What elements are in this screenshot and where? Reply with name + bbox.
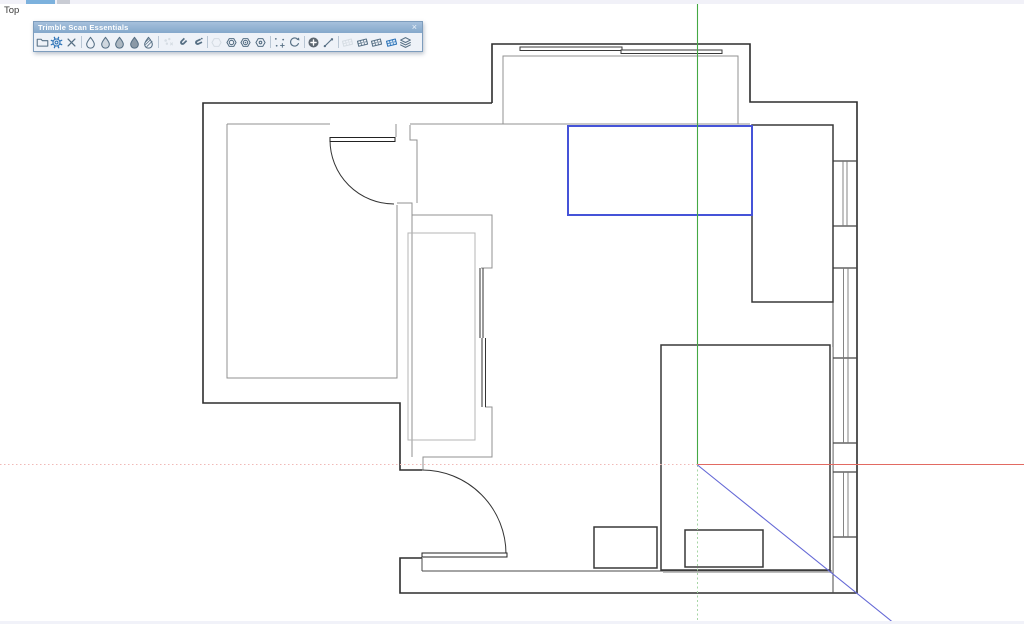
bed — [661, 345, 830, 570]
hexagon-target-icon[interactable] — [239, 34, 254, 50]
trimble-scan-essentials-toolbar: Trimble Scan Essentials × — [33, 21, 423, 52]
door-top-room — [330, 138, 395, 205]
close-icon[interactable]: × — [411, 23, 418, 32]
toolbar-separator — [158, 36, 159, 48]
open-file-icon[interactable] — [35, 34, 50, 50]
door-bottom — [422, 470, 507, 557]
layers-icon[interactable] — [399, 34, 414, 50]
hexagon-ring-icon[interactable] — [253, 34, 268, 50]
magnet-icon[interactable] — [176, 34, 191, 50]
measure-line-icon[interactable] — [321, 34, 336, 50]
mesh-dense-icon[interactable] — [370, 34, 385, 50]
drawing-canvas[interactable] — [0, 0, 1024, 624]
clear-icon[interactable] — [64, 34, 79, 50]
toolbar-separator — [81, 36, 82, 48]
toolbar-separator — [304, 36, 305, 48]
bay-window — [520, 47, 722, 54]
toolbar-separator — [207, 36, 208, 48]
bed-shadow — [663, 347, 833, 573]
selection-rectangle[interactable] — [568, 126, 752, 215]
mesh-active-icon[interactable] — [384, 34, 399, 50]
rotate-icon[interactable] — [287, 34, 302, 50]
toolbar-separator — [338, 36, 339, 48]
cabinet-sliding-doors — [480, 268, 486, 407]
mesh-faint-icon[interactable] — [341, 34, 356, 50]
scatter-points-icon[interactable] — [273, 34, 288, 50]
toolbar-titlebar[interactable]: Trimble Scan Essentials × — [34, 22, 422, 33]
sketchup-viewport: Top — [0, 0, 1024, 624]
magnet-alt-icon[interactable] — [190, 34, 205, 50]
mesh-icon[interactable] — [355, 34, 370, 50]
stool-left — [594, 527, 657, 568]
toolbar-title: Trimble Scan Essentials — [38, 23, 411, 32]
settings-gear-icon[interactable] — [50, 34, 65, 50]
wall-inner-edges — [422, 125, 833, 593]
toolbar-separator — [270, 36, 271, 48]
cabinet — [408, 233, 475, 440]
furniture — [594, 125, 833, 570]
sample-points-icon[interactable] — [161, 34, 176, 50]
point-cloud-outline-icon[interactable] — [84, 34, 99, 50]
point-cloud-hatched-icon[interactable] — [142, 34, 157, 50]
point-cloud-solid-icon[interactable] — [127, 34, 142, 50]
toolbar-icon-row — [34, 33, 422, 51]
right-wall-windows — [833, 161, 857, 537]
stool-right — [685, 530, 763, 567]
add-point-icon[interactable] — [307, 34, 322, 50]
outer-walls — [203, 44, 857, 593]
point-cloud-half-icon[interactable] — [98, 34, 113, 50]
hexagon-circle-icon[interactable] — [224, 34, 239, 50]
hexagon-outline-icon[interactable] — [210, 34, 225, 50]
point-cloud-shaded-icon[interactable] — [113, 34, 128, 50]
interior-walls — [227, 56, 750, 470]
axes — [0, 4, 1024, 624]
wardrobe — [752, 125, 833, 302]
axis-blue-solid — [698, 465, 896, 624]
